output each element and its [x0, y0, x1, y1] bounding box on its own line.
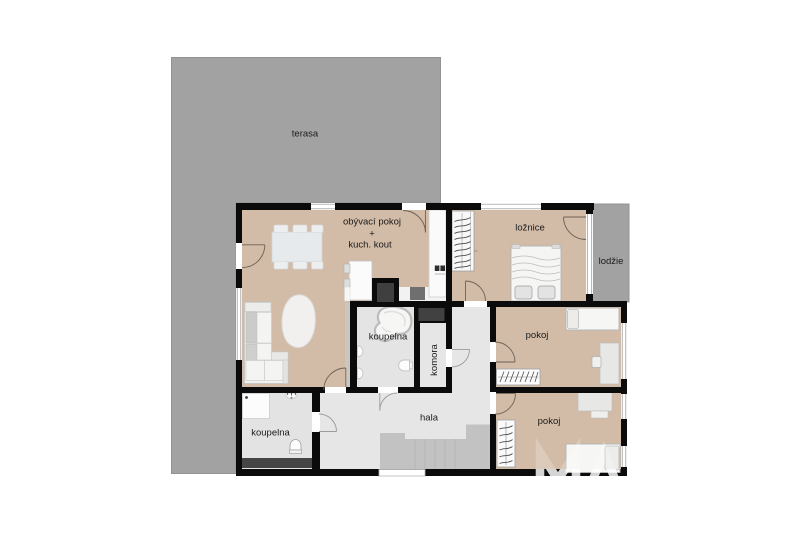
svg-text:ložnice: ložnice	[515, 223, 545, 234]
svg-text:terasa: terasa	[292, 129, 319, 140]
svg-text:pokoj: pokoj	[538, 416, 561, 427]
svg-text:pokoj: pokoj	[526, 330, 549, 341]
svg-text:obývací pokoj: obývací pokoj	[343, 217, 401, 228]
svg-text:koupelna: koupelna	[369, 332, 408, 343]
svg-text:+: +	[369, 229, 375, 240]
svg-text:koupelna: koupelna	[251, 428, 290, 439]
svg-text:kuch. kout: kuch. kout	[348, 240, 392, 251]
svg-text:komora: komora	[429, 343, 440, 375]
svg-text:hala: hala	[420, 413, 439, 424]
svg-text:lodžie: lodžie	[599, 256, 624, 267]
